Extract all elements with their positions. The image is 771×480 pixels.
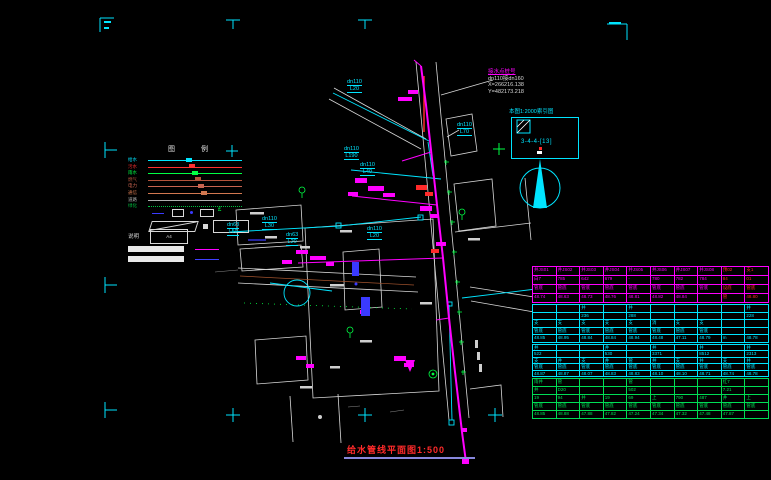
legend-row-label: 给水 xyxy=(128,157,137,163)
table-cell xyxy=(580,387,603,394)
table-cell: 井 xyxy=(604,358,627,363)
legend-small-square xyxy=(203,224,208,229)
table-cell: 井JS05 xyxy=(627,267,650,275)
table-cell: 支 xyxy=(698,320,721,327)
tie-in-y: Y=482173.218 xyxy=(488,89,524,96)
table-cell xyxy=(675,351,698,356)
table-cell: 管底 xyxy=(604,364,627,369)
table-cell xyxy=(698,313,721,320)
pipe-diameter-label: dn110 xyxy=(360,162,375,169)
table-cell: 48.74 xyxy=(533,294,556,302)
table-cell xyxy=(698,387,721,394)
table-cell: 48.85 xyxy=(533,411,556,418)
pipe-diameter-label: dn110 xyxy=(367,226,382,233)
table-cell xyxy=(580,351,603,356)
table-cell xyxy=(675,313,698,320)
table-cell: 228 xyxy=(745,313,768,320)
table-cell xyxy=(580,379,603,386)
table-cell xyxy=(675,387,698,394)
table-cell: 井 xyxy=(627,305,650,312)
table-cell: 支 xyxy=(533,320,556,327)
table-cell: 管底 xyxy=(675,285,698,293)
pipe-label: dn110L40 xyxy=(360,162,375,176)
table-cell: 48.80 xyxy=(745,294,768,302)
table-cell xyxy=(651,305,674,312)
table-cell: 支 xyxy=(722,358,745,363)
table-cell: 管底 xyxy=(557,364,580,369)
tie-in-annotation: 接水点桩号 dn110接dn160 X=266216.138 Y=482173.… xyxy=(488,69,524,95)
title-underline xyxy=(344,457,475,459)
table-cell: 47.24 xyxy=(627,411,650,418)
table-cell: 管底 xyxy=(651,403,674,410)
table-cell: 消 xyxy=(651,320,674,327)
table-cell: 井 xyxy=(580,395,603,402)
table-cell: 94 xyxy=(557,395,580,402)
table-cell: 管底 xyxy=(580,328,603,335)
table-cell: 管底 xyxy=(627,285,650,293)
table-cell: 管底 xyxy=(745,364,768,369)
table-cell: 支1 xyxy=(745,267,768,275)
pipe-diameter-label: dn110 xyxy=(347,79,362,86)
table-cell: 支 xyxy=(557,320,580,327)
table-cell: 69 xyxy=(627,395,650,402)
table-cell: 236 xyxy=(580,313,603,320)
table-cell: 642 xyxy=(580,276,603,284)
pipe-diameter-label: dn110 xyxy=(262,216,277,223)
legend-line-sample xyxy=(148,206,242,207)
table-cell xyxy=(557,305,580,312)
table-cell xyxy=(604,379,627,386)
table-cell: 支 xyxy=(627,320,650,327)
table-cell: 井JS07 xyxy=(675,267,698,275)
table-cell xyxy=(722,320,745,327)
table-cell: 管 xyxy=(722,294,745,302)
table-cell: 7.21 xyxy=(722,387,745,394)
table-cell xyxy=(557,313,580,320)
table-cell: 管 xyxy=(627,379,650,386)
pipe-length-label: L40 xyxy=(360,169,375,176)
pipe-length-label: L50 xyxy=(227,229,239,236)
table-cell xyxy=(533,313,556,320)
table-cell: 3371 xyxy=(651,351,674,356)
table-cell: 管底 xyxy=(533,403,556,410)
table-cell: 48.78 xyxy=(745,335,768,342)
table-cell xyxy=(722,351,745,356)
grid-cross-green xyxy=(493,143,505,155)
table-cell: 管底 xyxy=(651,285,674,293)
table-cell: 井JS06 xyxy=(651,267,674,275)
table-cell: 679 xyxy=(604,276,627,284)
table-cell: 井 xyxy=(745,358,768,363)
table-cell: 管底 xyxy=(627,364,650,369)
table-cell: 48.07 xyxy=(580,371,603,376)
table-cell: 管底 xyxy=(533,285,556,293)
table-cell: 管 xyxy=(557,379,580,386)
table-group: 井JS01井JS02井JS03井JS04井JS05井JS06井JS07井JS08… xyxy=(532,266,769,303)
table-cell: 管底 xyxy=(745,285,768,293)
legend-row-label: 通信 xyxy=(128,190,137,196)
table-cell: 530 xyxy=(604,351,627,356)
table-cell: 预02 xyxy=(722,267,745,275)
table-cell: 管底 xyxy=(604,403,627,410)
table-cell xyxy=(722,305,745,312)
table-cell: 48.87 xyxy=(533,371,556,376)
table-cell: 管底 xyxy=(580,285,603,293)
table-cell: m xyxy=(722,335,745,342)
legend-line-marker xyxy=(195,177,201,181)
table-cell xyxy=(698,379,721,386)
table-cell: 288 xyxy=(627,313,650,320)
legend-magenta-line xyxy=(195,249,219,250)
legend-row-label: 绿化 xyxy=(128,203,137,209)
index-box xyxy=(511,117,579,159)
cad-viewport[interactable]: 接水点桩号 dn110接dn160 X=266216.138 Y=482173.… xyxy=(0,0,771,480)
table-cell: 48.81 xyxy=(627,294,650,302)
table-cell: 井 xyxy=(651,345,674,350)
table-cell: 上 xyxy=(651,395,674,402)
table-cell: 48.95 xyxy=(557,335,580,342)
table-cell xyxy=(675,379,698,386)
table-cell: 48.88 xyxy=(557,411,580,418)
table-cell xyxy=(698,305,721,312)
table-cell: 管底 xyxy=(604,285,627,293)
legend-line-marker xyxy=(186,158,192,162)
table-cell xyxy=(675,305,698,312)
table-cell: 支 xyxy=(604,320,627,327)
table-cell: 支 xyxy=(533,358,556,363)
table-cell: 19 xyxy=(604,395,627,402)
table-cell: D20 xyxy=(557,387,580,394)
table-cell xyxy=(675,345,698,350)
legend-bar xyxy=(128,256,184,262)
table-cell: 管 xyxy=(627,358,650,363)
legend-line-sample xyxy=(148,193,242,194)
table-cell: 8512 xyxy=(698,351,721,356)
index-box-title: 本图1:2000索引图 xyxy=(509,109,553,116)
pipe-diameter-label: dn63 xyxy=(227,222,239,229)
legend-row-label: 燃气 xyxy=(128,177,137,183)
table-cell: 01 xyxy=(745,276,768,284)
table-cell: 48.83 xyxy=(604,371,627,376)
table-cell: 管底 xyxy=(698,328,721,335)
table-cell: 782 xyxy=(675,276,698,284)
legend-line-marker xyxy=(189,164,195,168)
pipe-label: dn63L20 xyxy=(286,232,298,246)
table-cell xyxy=(722,313,745,320)
table-cell: 管底 xyxy=(698,364,721,369)
index-box-label: 3-4-4-[13] xyxy=(521,139,552,145)
table-cell: 管底 xyxy=(627,403,650,410)
table-cell: 管底 xyxy=(675,364,698,369)
table-cell xyxy=(651,387,674,394)
pipe-label: dn110L30 xyxy=(262,216,277,230)
table-cell: 管底 xyxy=(698,403,721,410)
legend-note-label: 说明 xyxy=(128,232,139,240)
legend-row-label: 污水 xyxy=(128,164,137,170)
table-cell: 48.71 xyxy=(698,371,721,376)
legend-symbol-box xyxy=(200,209,214,217)
table-cell xyxy=(745,320,768,327)
table-cell: 47.82 xyxy=(604,411,627,418)
table-cell: 48.94 xyxy=(627,335,650,342)
table-cell: 48.84 xyxy=(675,294,698,302)
legend-line-marker xyxy=(198,184,204,188)
table-cell: 48.74 xyxy=(722,371,745,376)
table-group: 雨井管管红7井D205027.211994井1969上790487井上管底管底管… xyxy=(532,378,769,419)
table-cell xyxy=(698,294,721,302)
table-group: 井井井236288228支支支支支消支支管底管底管底管底管底管底管底管底48.8… xyxy=(532,304,769,343)
table-cell: 管底 xyxy=(627,328,650,335)
legend-line-marker xyxy=(192,171,198,175)
table-cell: 780 xyxy=(651,276,674,284)
table-cell: 47.34 xyxy=(651,411,674,418)
water-lines xyxy=(230,93,536,425)
table-cell: 48.63 xyxy=(557,294,580,302)
table-cell xyxy=(745,387,768,394)
table-cell: 管底 xyxy=(533,328,556,335)
table-cell xyxy=(604,313,627,320)
gas-lines xyxy=(240,276,414,285)
pipe-diameter-label: dn110 xyxy=(457,122,472,129)
table-cell: 47.87 xyxy=(722,411,745,418)
pipe-length-label: L190 xyxy=(344,153,359,160)
pipe-length-label: L30 xyxy=(262,223,277,230)
table-cell: 19 xyxy=(533,395,556,402)
table-cell: 790 xyxy=(675,395,698,402)
table-cell: 井JS08 xyxy=(698,267,721,275)
table-cell: 502 xyxy=(627,387,650,394)
table-cell xyxy=(580,345,603,350)
table-cell: 48.84 xyxy=(604,335,627,342)
table-cell: 管底 xyxy=(604,328,627,335)
table-cell xyxy=(651,379,674,386)
legend-row-label: 雨水 xyxy=(128,170,137,176)
legend-symbol-box xyxy=(172,209,184,217)
table-cell: 47.11 xyxy=(675,335,698,342)
table-cell: 48.76 xyxy=(604,294,627,302)
table-cell: 井 xyxy=(651,358,674,363)
table-cell: 井 xyxy=(698,358,721,363)
legend-line-sample xyxy=(148,186,242,187)
table-cell: 井 xyxy=(533,345,556,350)
table-cell: 785 xyxy=(557,276,580,284)
table-cell: 红7 xyxy=(722,379,745,386)
table-cell: 管底 xyxy=(533,364,556,369)
table-cell: 设底 xyxy=(722,285,745,293)
table-cell: 784 xyxy=(698,276,721,284)
table-cell xyxy=(722,328,745,335)
table-cell xyxy=(745,379,768,386)
table-cell xyxy=(722,345,745,350)
table-cell: 管底 xyxy=(557,328,580,335)
pipe-diameter-label: dn63 xyxy=(286,232,298,239)
table-cell: 管底 xyxy=(745,403,768,410)
table-cell: 48.79 xyxy=(698,335,721,342)
table-cell xyxy=(745,328,768,335)
table-cell xyxy=(627,351,650,356)
legend-line-sample xyxy=(148,160,242,161)
table-cell: 管底 xyxy=(722,403,745,410)
table-cell: 48.84 xyxy=(580,335,603,342)
table-cell: 上 xyxy=(745,395,768,402)
table-cell: 管底 xyxy=(651,328,674,335)
table-cell: 管底 xyxy=(675,403,698,410)
tie-in-x: X=266216.138 xyxy=(488,82,524,89)
table-cell: 47.88 xyxy=(580,411,603,418)
table-cell: 井 xyxy=(557,358,580,363)
legend-title: 图 例 xyxy=(168,144,220,154)
pipe-label: dn110L20 xyxy=(347,79,362,93)
table-cell: 管底 xyxy=(557,285,580,293)
table-cell: 管底 xyxy=(651,364,674,369)
table-cell: 48.87 xyxy=(557,371,580,376)
pipe-length-label: L20 xyxy=(367,233,382,240)
table-cell: 支 xyxy=(675,320,698,327)
legend-row-label: 电力 xyxy=(128,183,137,189)
table-cell xyxy=(745,411,768,418)
pipe-length-label: L20 xyxy=(286,239,298,246)
table-cell: 48.83 xyxy=(627,371,650,376)
legend-row-label: 道路 xyxy=(128,197,137,203)
table-cell: 管底 xyxy=(580,364,603,369)
table-cell: 管底 xyxy=(675,328,698,335)
legend-blue-line xyxy=(195,259,219,260)
table-cell: 2313 xyxy=(745,351,768,356)
table-cell: 48.73 xyxy=(580,294,603,302)
legend-bar xyxy=(128,246,184,252)
table-cell: 支 xyxy=(580,358,603,363)
pipe-length-label: L70 xyxy=(457,129,472,136)
table-cell: 管底 xyxy=(557,403,580,410)
table-cell: 白7 xyxy=(533,276,556,284)
table-cell: 支 xyxy=(580,320,603,327)
table-cell: 48.78 xyxy=(745,371,768,376)
pipe-label: dn110L20 xyxy=(367,226,382,240)
table-cell: 井JS04 xyxy=(604,267,627,275)
table-cell xyxy=(604,387,627,394)
table-cell: 管底 xyxy=(580,403,603,410)
table-cell: 支 xyxy=(675,358,698,363)
table-cell: - xyxy=(627,276,650,284)
pipe-label: dn110L190 xyxy=(344,146,359,160)
table-cell: 管底 xyxy=(722,364,745,369)
legend-symbol-dot xyxy=(190,211,193,214)
drawing-title: 给水管线平面图1:500 xyxy=(347,443,445,456)
table-cell xyxy=(627,345,650,350)
pipe-label: dn110L70 xyxy=(457,122,472,136)
table-cell xyxy=(557,345,580,350)
table-cell xyxy=(651,313,674,320)
table-cell xyxy=(533,305,556,312)
table-cell: 48.48 xyxy=(651,335,674,342)
legend-line-sample xyxy=(148,200,242,201)
table-cell xyxy=(557,351,580,356)
table-cell: 47.48 xyxy=(698,411,721,418)
table-cell: 48.85 xyxy=(533,335,556,342)
table-cell: 井JS03 xyxy=(580,267,603,275)
main-pipeline xyxy=(282,60,469,464)
table-cell: 84 xyxy=(722,276,745,284)
pipe-label: dn63L50 xyxy=(227,222,239,236)
table-cell: 48.10 xyxy=(651,371,674,376)
table-cell: 487 xyxy=(698,395,721,402)
table-group: 井井井井井522530337185122313支井支井管井支井支井管底管底管底管… xyxy=(532,344,769,377)
table-cell: 井 xyxy=(745,305,768,312)
table-cell: 井 xyxy=(698,345,721,350)
table-cell: 井 xyxy=(745,345,768,350)
table-cell: 井JS01 xyxy=(533,267,556,275)
pipe-diameter-label: dn110 xyxy=(344,146,359,153)
table-cell: 47.32 xyxy=(675,411,698,418)
table-cell: 井 xyxy=(722,395,745,402)
legend-note-box: A4 xyxy=(150,229,188,244)
legend-symbol-glyph: £ xyxy=(218,207,221,213)
legend-symbol-dash xyxy=(152,213,164,214)
table-cell: 雨井 xyxy=(533,379,556,386)
pipe-length-label: L20 xyxy=(347,86,362,93)
table-cell: 井JS02 xyxy=(557,267,580,275)
table-cell: 井 xyxy=(604,345,627,350)
table-cell: 管底 xyxy=(698,285,721,293)
table-cell: 井 xyxy=(533,387,556,394)
table-cell xyxy=(604,305,627,312)
table-cell: 522 xyxy=(533,351,556,356)
legend-line-sample xyxy=(148,167,242,168)
table-cell: 48.82 xyxy=(651,294,674,302)
table-cell: 48.10 xyxy=(675,371,698,376)
legend-line-marker xyxy=(201,191,207,195)
table-cell: 井 xyxy=(580,305,603,312)
